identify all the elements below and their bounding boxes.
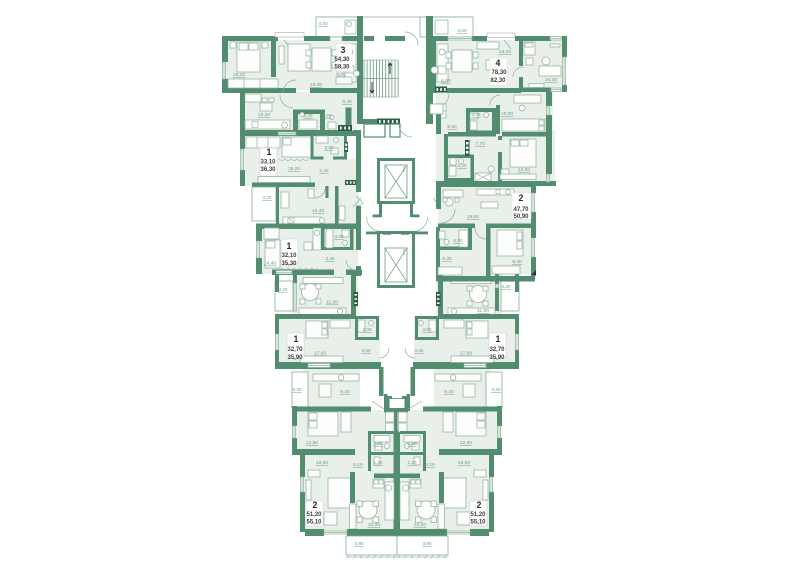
svg-text:2: 2 [313,500,318,510]
svg-text:47,70: 47,70 [513,207,529,213]
svg-text:1: 1 [294,334,299,344]
svg-text:2: 2 [477,500,482,510]
svg-text:3,20: 3,20 [293,387,302,392]
svg-text:55,10: 55,10 [306,520,322,526]
svg-text:3,20: 3,20 [458,163,467,168]
svg-text:55,10: 55,10 [470,520,486,526]
svg-text:82,30: 82,30 [490,78,506,84]
svg-text:51,20: 51,20 [306,512,322,518]
svg-text:1: 1 [267,147,272,157]
svg-text:32,10: 32,10 [281,253,297,259]
svg-text:33,10: 33,10 [260,160,276,166]
svg-text:1,20: 1,20 [374,460,383,465]
svg-text:2: 2 [519,193,524,203]
svg-text:3,90: 3,90 [355,541,364,546]
svg-text:2,20: 2,20 [304,113,313,118]
svg-text:2,50: 2,50 [408,441,417,446]
svg-text:3,00: 3,00 [335,234,344,239]
svg-text:3,20: 3,20 [263,195,272,200]
svg-text:4: 4 [496,58,501,68]
svg-text:58,30: 58,30 [334,65,350,71]
svg-text:3,40: 3,40 [326,256,335,261]
svg-text:54,30: 54,30 [334,57,350,63]
svg-text:1,20: 1,20 [323,113,332,118]
svg-text:3,40: 3,40 [320,168,329,173]
svg-text:36,30: 36,30 [260,167,276,173]
svg-text:32,70: 32,70 [489,347,505,353]
svg-text:3,20: 3,20 [502,284,511,289]
svg-text:1: 1 [496,334,501,344]
svg-text:3,00: 3,00 [325,145,334,150]
svg-text:3,00: 3,00 [423,327,432,332]
svg-text:3,40: 3,40 [415,348,424,353]
svg-text:5,00: 5,00 [454,238,463,243]
svg-text:3,20: 3,20 [492,387,501,392]
svg-text:3,20: 3,20 [279,287,288,292]
svg-text:50,90: 50,90 [513,214,529,220]
svg-text:3,90: 3,90 [423,541,432,546]
svg-text:78,30: 78,30 [491,70,507,76]
svg-text:35,30: 35,30 [281,261,297,267]
svg-text:3,40: 3,40 [362,348,371,353]
svg-text:1,20: 1,20 [408,460,417,465]
svg-text:3,00: 3,00 [472,112,481,117]
svg-text:3,00: 3,00 [363,327,372,332]
svg-text:3: 3 [341,45,346,55]
svg-text:51,20: 51,20 [470,512,486,518]
svg-text:35,90: 35,90 [287,355,303,361]
svg-text:35,90: 35,90 [489,355,505,361]
svg-text:32,70: 32,70 [287,347,303,353]
svg-text:1: 1 [287,241,292,251]
svg-text:2,50: 2,50 [374,441,383,446]
